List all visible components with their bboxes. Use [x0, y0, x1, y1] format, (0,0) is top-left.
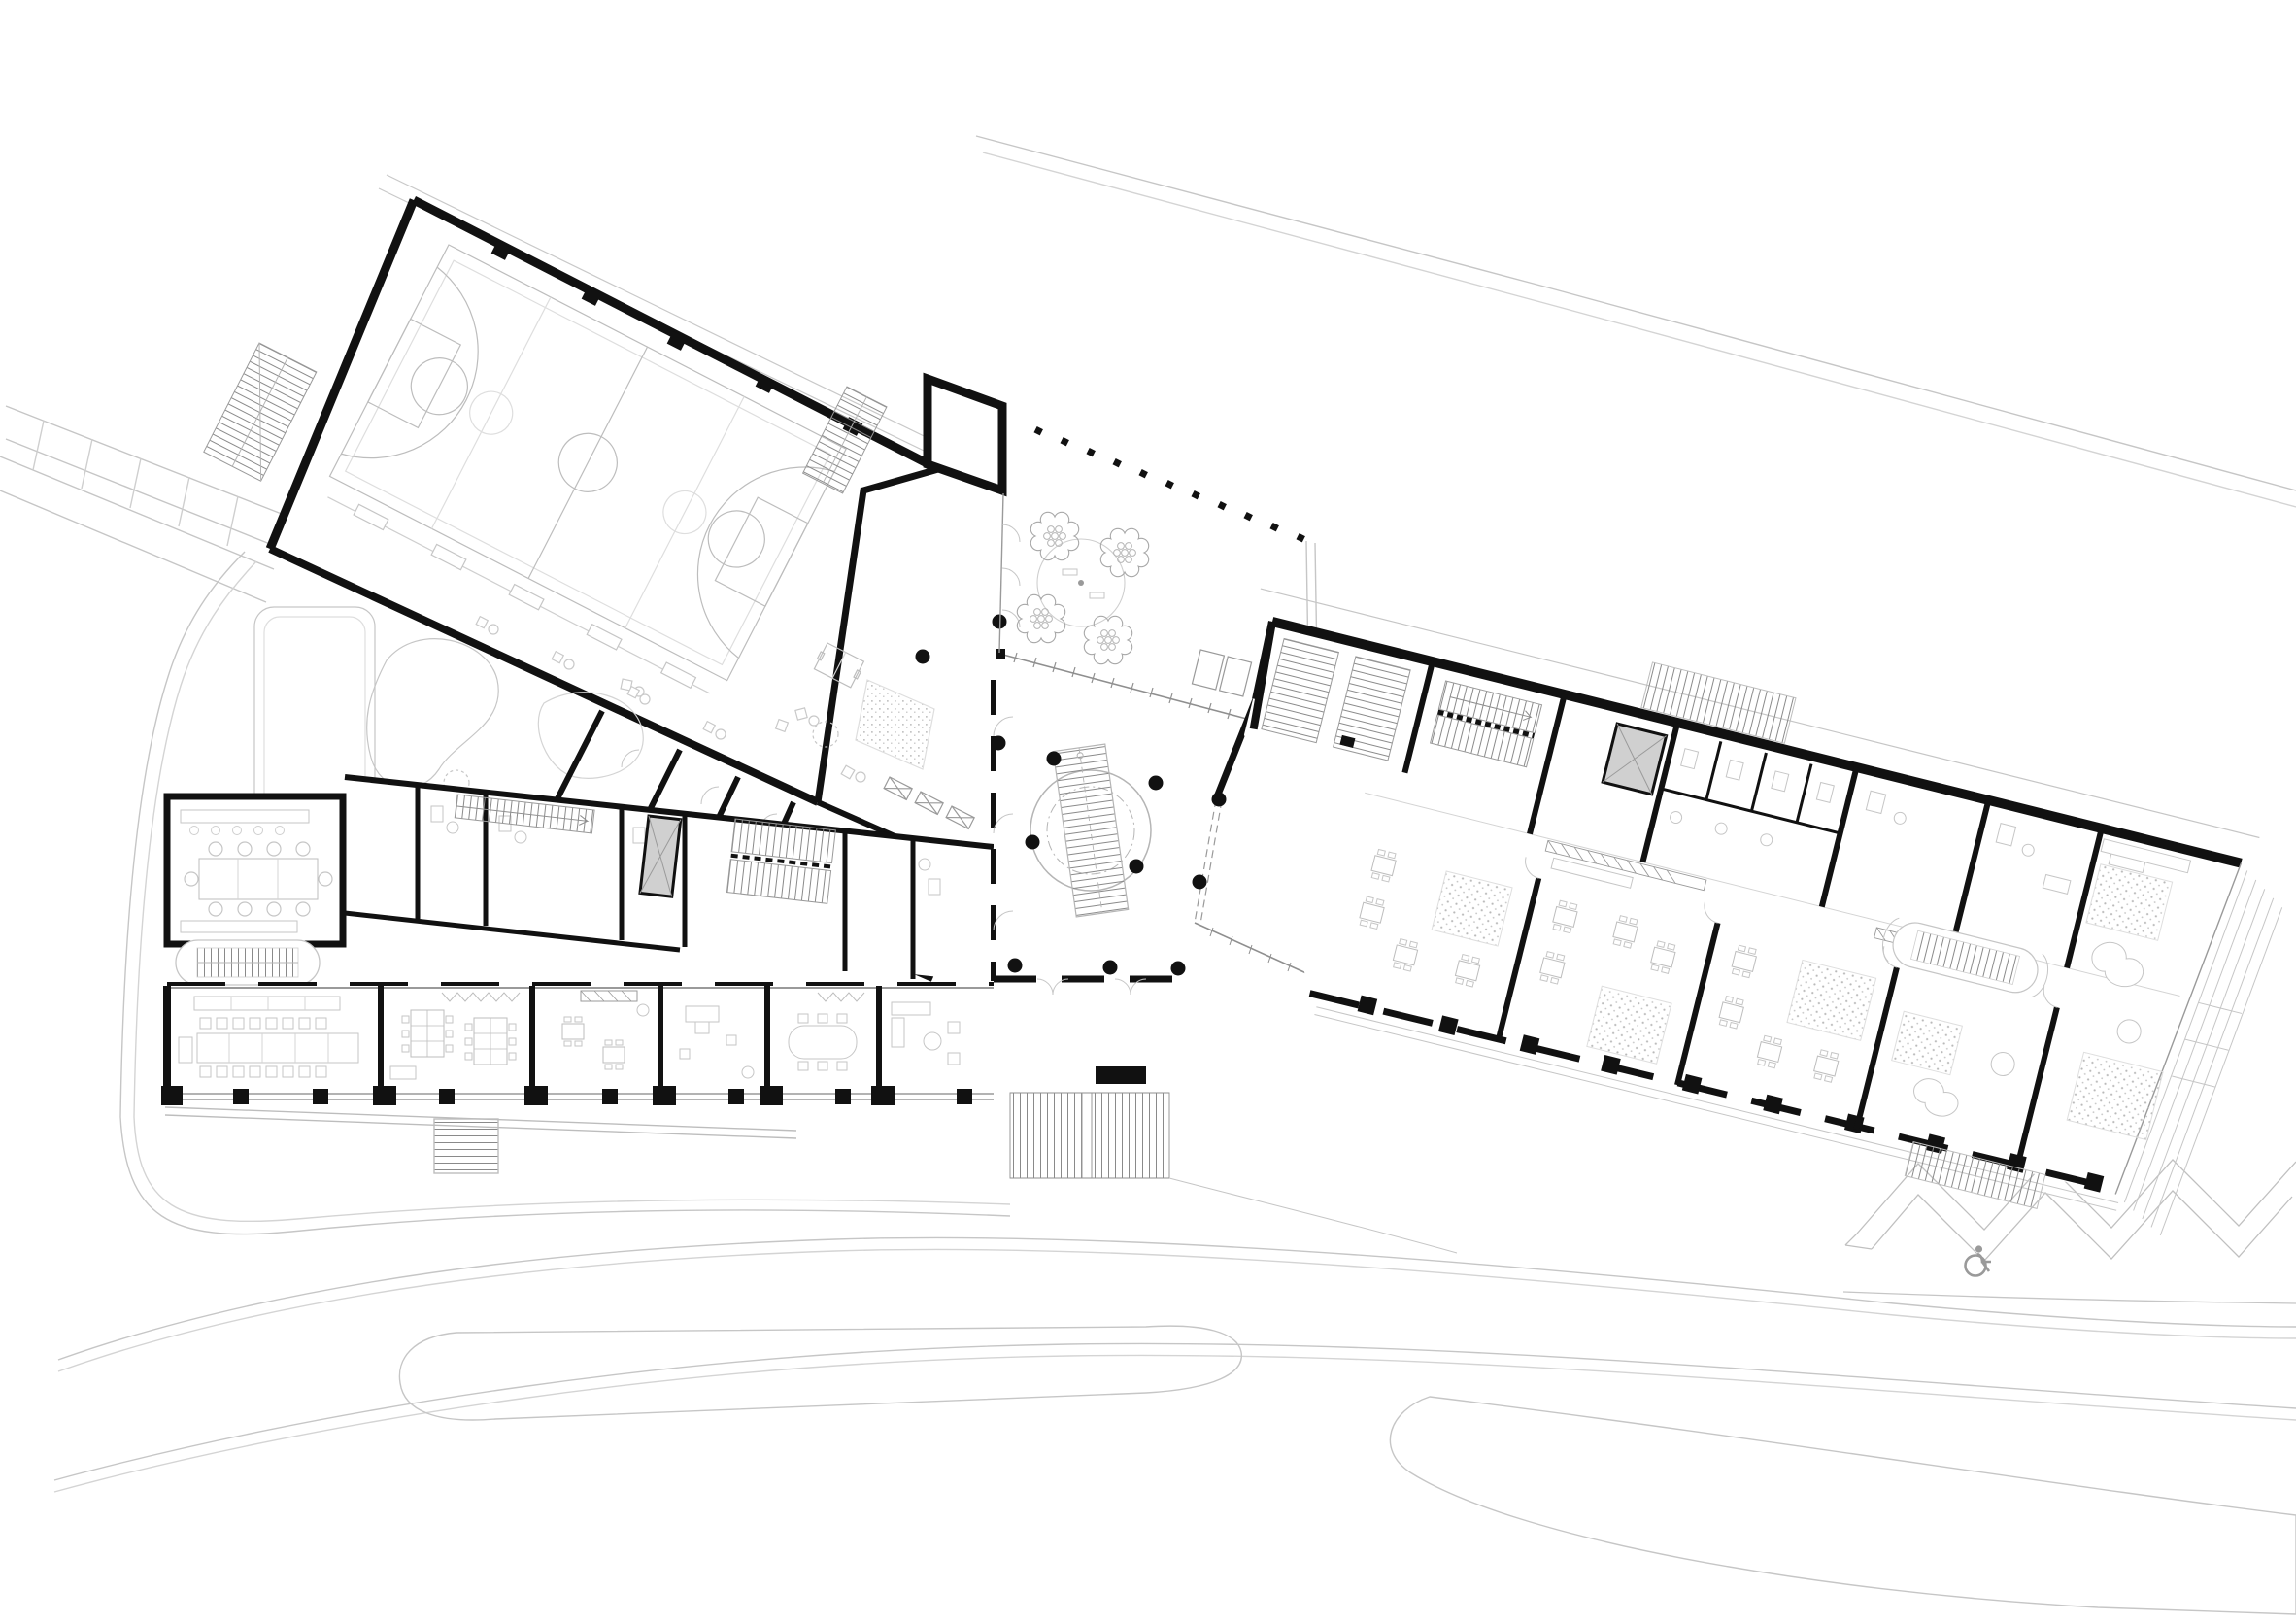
meeting-room: [167, 796, 343, 944]
left-wing-classrooms: [161, 984, 994, 1105]
courtyard: [999, 426, 1305, 696]
courtyard-trees: [1017, 512, 1148, 663]
left-wing-upper-band: [345, 777, 994, 983]
road-island-right: [1390, 1397, 2296, 1614]
small-meeting-room: [789, 1014, 857, 1070]
road-island-left: [399, 1326, 1241, 1420]
table-tennis: [1192, 650, 1251, 696]
floor-plan-drawing: [0, 0, 2296, 1623]
outdoor-stair-south: [1010, 1093, 1457, 1253]
courtyard-columns: [1034, 426, 1305, 542]
left-wing-elevator: [640, 816, 681, 896]
wheelchair-access-icon: [1966, 1245, 1992, 1275]
entrance-ramp: [176, 940, 320, 985]
floor-plan-page: [0, 0, 2296, 1623]
atrium-south-pier: [1096, 1066, 1146, 1084]
hall-west-stair: [204, 343, 317, 481]
right-wing: [1161, 566, 2296, 1249]
left-wing-main-stair: [726, 819, 835, 903]
